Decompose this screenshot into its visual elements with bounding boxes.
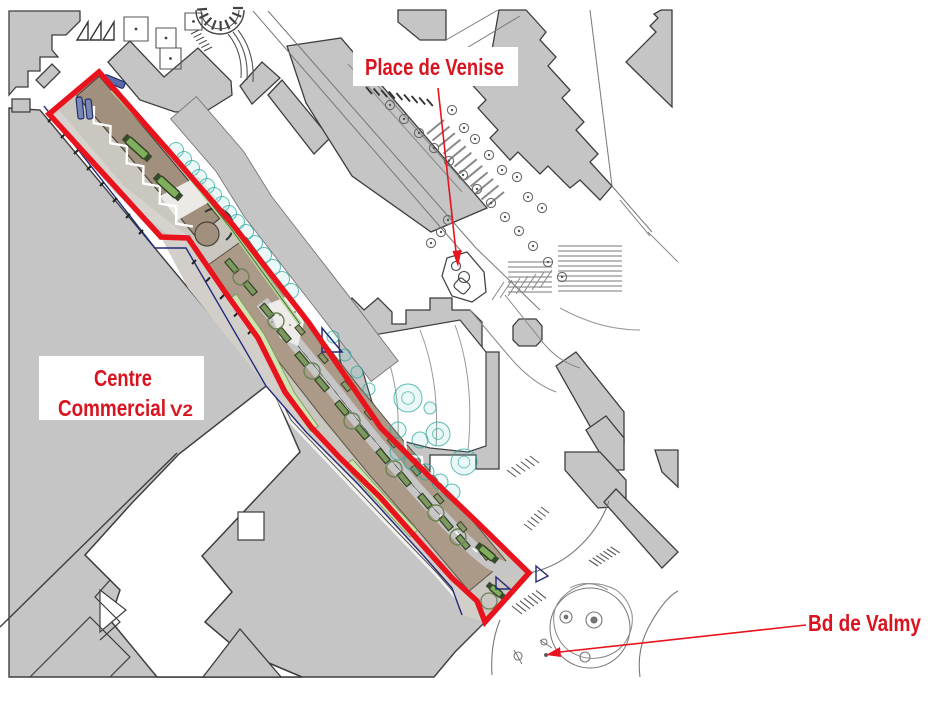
svg-text:Centre: Centre [94,365,152,391]
svg-text:Commercial: Commercial [58,395,166,421]
svg-text:Place de Venise: Place de Venise [365,54,504,80]
svg-text:Bd de Valmy: Bd de Valmy [808,610,921,636]
svg-text:V2: V2 [170,401,193,420]
